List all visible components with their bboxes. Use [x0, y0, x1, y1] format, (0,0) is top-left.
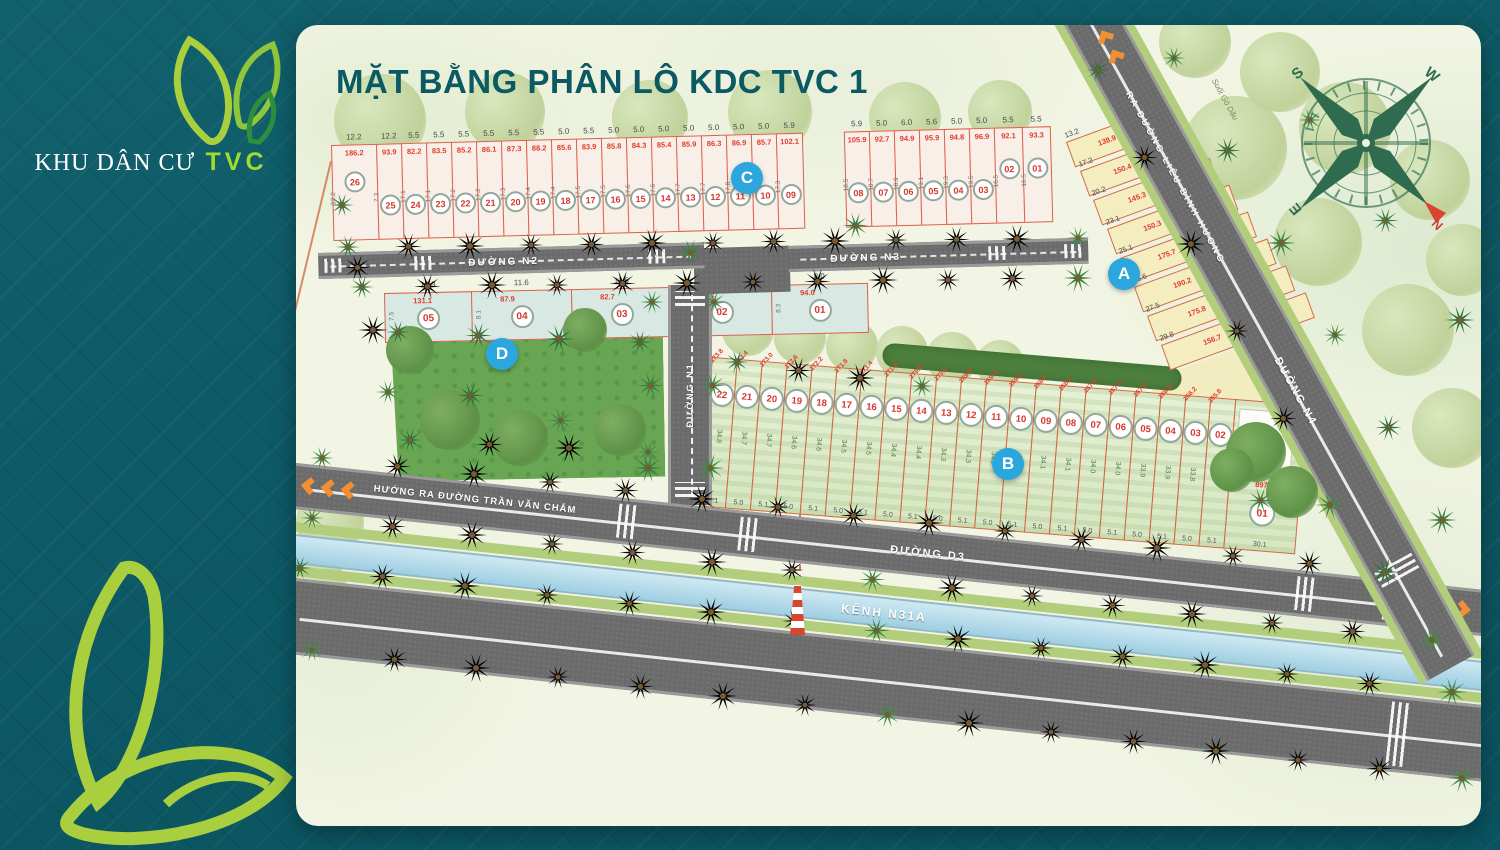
lot-area: 83.5	[427, 146, 451, 156]
lot-number: 01	[808, 299, 831, 322]
lot-number: 05	[1133, 416, 1159, 442]
lot-number: 04	[510, 305, 533, 328]
lot-number: 24	[405, 194, 427, 216]
lot-top-dim: 5.9	[777, 121, 802, 131]
palm-tree-icon	[868, 265, 898, 295]
palm-tree-icon	[609, 270, 636, 297]
lot-side-dim: 8.3	[775, 304, 782, 313]
palm-tree-icon	[538, 470, 562, 494]
lot-bottom-dim: 5.0	[876, 511, 900, 520]
palm-tree-icon	[628, 330, 652, 354]
lot-top-dim: 5.5	[477, 129, 501, 139]
lot-number: 08	[1058, 410, 1084, 436]
palm-tree-icon	[1002, 224, 1032, 254]
lot-number: 21	[734, 384, 760, 410]
lot-bottom-dim: 5.0	[1175, 535, 1199, 544]
palm-tree-icon	[296, 556, 312, 580]
lot-area: 85.2	[452, 145, 476, 155]
lot-top-dim: 5.0	[552, 127, 576, 137]
palm-tree-icon	[1275, 662, 1299, 686]
lot-area: 175.7	[1156, 247, 1177, 262]
palm-tree-icon	[310, 446, 334, 470]
palm-tree-icon	[1039, 720, 1063, 744]
lot-area: 86.9	[727, 138, 751, 148]
lot-side-dim: 34.4	[914, 445, 922, 459]
lot-area: 86.1	[477, 145, 501, 155]
palm-tree-icon	[1296, 550, 1323, 577]
lot-side-dim: 34.5	[839, 439, 847, 453]
lot-bottom-dim: 5.1	[1100, 529, 1124, 538]
palm-tree-icon	[1225, 319, 1249, 343]
chevron-left-icon	[301, 477, 319, 495]
palm-tree-icon	[1323, 323, 1347, 347]
lot-side-dim: 33.9	[1138, 463, 1146, 477]
palm-tree-icon	[884, 228, 908, 252]
leaf-decoration	[6, 552, 306, 850]
lot-number: 08	[848, 182, 870, 204]
lot-c-09: 5.9102.117.309	[776, 133, 806, 230]
block-c-row: 12.2186.212.22612.293.97.3255.582.217.12…	[332, 125, 1084, 241]
lot-bottom-dim: 5.1	[950, 517, 974, 526]
palm-tree-icon	[637, 228, 667, 258]
lot-top-dim: 5.0	[652, 124, 676, 134]
lot-side-dim: 34.7	[764, 433, 772, 447]
lot-bottom-dim: 5.0	[726, 499, 750, 508]
palm-tree-icon	[300, 506, 324, 530]
palm-tree-icon	[640, 290, 664, 314]
palm-tree-icon	[1029, 636, 1053, 660]
lot-top-dim: 5.0	[702, 123, 726, 133]
lot-area: 156.7	[1201, 332, 1222, 347]
lot-number: 22	[455, 192, 477, 214]
lot-area: 150.3	[1141, 218, 1162, 233]
palm-tree-icon	[1120, 728, 1147, 755]
palm-tree-icon	[954, 708, 984, 738]
lot-top-dim: 5.5	[527, 127, 551, 137]
lot-side-dim: 34.6	[814, 437, 822, 451]
palm-tree-icon	[461, 653, 491, 683]
lot-area: 95.9	[920, 133, 944, 143]
lot-area: 186.2	[332, 148, 376, 158]
lot-number: 14	[655, 187, 677, 209]
lot-number: 05	[923, 180, 945, 202]
lot-side-dim: 34.5	[864, 441, 872, 455]
chevron-left-icon	[341, 481, 359, 499]
lot-number: 17	[580, 189, 602, 211]
palm-tree-icon	[1221, 544, 1245, 568]
palm-tree-icon	[1201, 736, 1231, 766]
palm-tree-icon	[1375, 414, 1402, 441]
lot-area: 85.6	[552, 143, 576, 153]
palm-tree-icon	[1177, 599, 1207, 629]
lot-number: 18	[809, 390, 835, 416]
brand-prefix: KHU DÂN CƯ	[34, 150, 195, 176]
palm-tree-icon	[793, 693, 817, 717]
lot-number: 19	[530, 190, 552, 212]
poster-background: KHU DÂN CƯ TVC 12.2186.212.22612.293.97.…	[0, 0, 1500, 850]
lot-number: 13	[933, 400, 959, 426]
lot-bottom-dim: 5.1	[801, 505, 825, 514]
lot-area: 92.7	[870, 134, 894, 144]
lot-area: 190.2	[1171, 275, 1192, 290]
lot-top-dim: 5.9	[845, 119, 869, 129]
palm-tree-icon	[546, 665, 570, 689]
palm-tree-icon	[637, 372, 664, 399]
palm-tree-icon	[999, 265, 1026, 292]
palm-tree-icon	[677, 239, 704, 266]
palm-tree-icon	[578, 231, 605, 258]
palm-tree-icon	[1020, 584, 1044, 608]
palm-tree-icon	[1109, 643, 1136, 670]
palm-tree-icon	[476, 431, 503, 458]
palm-tree-icon	[741, 270, 765, 294]
palm-tree-icon	[859, 566, 886, 593]
palm-tree-icon	[1190, 650, 1220, 680]
lot-side-dim: 16.5	[1021, 174, 1028, 187]
lot-number: 04	[948, 179, 970, 201]
palm-tree-icon	[1247, 487, 1274, 514]
palm-tree-icon	[1427, 505, 1457, 535]
palm-tree-icon	[1447, 763, 1477, 793]
lot-side-dim: 34.3	[964, 449, 972, 463]
palm-tree-icon	[785, 357, 812, 384]
palm-tree-icon	[699, 372, 726, 399]
tree-canopy	[1426, 224, 1481, 296]
lot-area: 85.7	[752, 137, 776, 147]
palm-tree-icon	[544, 324, 574, 354]
palm-tree-icon	[1417, 625, 1447, 655]
badge-block-c: C	[731, 162, 763, 194]
palm-tree-icon	[627, 673, 654, 700]
site-plan-panel: 12.2186.212.22612.293.97.3255.582.217.12…	[296, 25, 1481, 826]
lot-area: 138.9	[1097, 133, 1118, 148]
lot-side-dim: 16.5	[993, 175, 1000, 188]
palm-tree-icon	[1214, 137, 1241, 164]
lot-area: 94.9	[895, 134, 919, 144]
palm-tree-icon	[1162, 46, 1186, 70]
crosswalk	[324, 258, 341, 272]
palm-tree-icon	[1131, 144, 1158, 171]
lot-top-dim: 5.0	[677, 123, 701, 133]
palm-tree-icon	[636, 440, 660, 464]
lot-top-dim: 5.5	[452, 129, 476, 139]
palm-tree-icon	[457, 382, 484, 409]
palm-tree-icon	[395, 233, 422, 260]
lot-number: 25	[380, 194, 402, 216]
lot-number: 09	[1033, 408, 1059, 434]
tree-canopy	[1210, 448, 1254, 492]
palm-tree-icon	[1260, 611, 1284, 635]
lot-number: 17	[834, 392, 860, 418]
lot-number: 06	[1108, 414, 1134, 440]
badge-block-b: B	[992, 448, 1024, 480]
palm-tree-icon	[619, 539, 646, 566]
palm-tree-icon	[1086, 58, 1110, 82]
lot-area: 87.3	[502, 144, 526, 154]
palm-tree-icon	[937, 573, 967, 603]
lot-number: 05	[417, 307, 440, 330]
lot-top-dim: 5.0	[727, 122, 751, 132]
lot-top-dim: 12.2	[332, 132, 376, 142]
lot-top-dim: 5.0	[870, 118, 894, 128]
crosswalk	[1294, 576, 1315, 612]
lot-number: 20	[505, 191, 527, 213]
lot-number: 18	[555, 190, 577, 212]
palm-tree-icon	[414, 273, 441, 300]
palm-tree-icon	[702, 290, 726, 314]
lot-number: 26	[344, 171, 366, 193]
palm-tree-icon	[708, 681, 738, 711]
lot-number: 03	[610, 303, 633, 326]
lot-bottom-dim: 5.0	[1025, 523, 1049, 532]
compass-e: E	[1286, 199, 1305, 218]
lot-top-dim: 5.5	[577, 126, 601, 136]
palm-tree-icon	[845, 363, 875, 393]
lot-top-dim: 12.2	[377, 131, 401, 141]
lot-number: 20	[759, 386, 785, 412]
palm-tree-icon	[697, 547, 727, 577]
lot-side-dim: 34.0	[1113, 461, 1121, 475]
lot-top-dim: 5.5	[402, 131, 426, 141]
lot-number: 19	[784, 388, 810, 414]
palm-tree-icon	[330, 193, 354, 217]
palm-tree-icon	[376, 380, 400, 404]
badge-block-d: D	[486, 338, 518, 370]
lot-area: 85.4	[652, 140, 676, 150]
palm-tree-icon	[1270, 405, 1297, 432]
lot-c-01: 5.593.316.501	[1022, 126, 1054, 223]
lot-area: 83.9	[577, 142, 601, 152]
lot-side-dim: 34.7	[740, 431, 748, 445]
lot-number: 13	[680, 186, 702, 208]
lot-number: 07	[873, 181, 895, 203]
palm-tree-icon	[398, 428, 422, 452]
palm-tree-icon	[725, 350, 749, 374]
road-d3-label: ĐƯỜNG D3	[890, 544, 967, 564]
palm-tree-icon	[910, 374, 934, 398]
lot-area: 85.9	[677, 139, 701, 149]
site-boundary-line	[296, 161, 332, 453]
lot-side-dim: 34.4	[889, 443, 897, 457]
palm-tree-icon	[672, 268, 702, 298]
lot-number: 10	[1008, 406, 1034, 432]
palm-tree-icon	[760, 228, 787, 255]
lot-number: 06	[898, 181, 920, 203]
lot-number: 23	[430, 193, 452, 215]
lot-number: 14	[908, 398, 934, 424]
lot-number: 04	[1158, 418, 1184, 444]
lot-number: 15	[884, 396, 910, 422]
crosswalk	[737, 517, 758, 553]
palm-tree-icon	[547, 407, 574, 434]
palm-tree-icon	[386, 320, 410, 344]
palm-tree-icon	[477, 270, 507, 300]
palm-tree-icon	[1366, 755, 1393, 782]
palm-tree-icon	[1339, 618, 1366, 645]
lot-side-dim: 34.6	[789, 435, 797, 449]
palm-tree-icon	[459, 459, 489, 489]
palm-tree-icon	[1063, 263, 1093, 293]
lot-side-dim: 34.8	[715, 429, 723, 443]
palm-tree-icon	[914, 508, 944, 538]
lot-area: 93.3	[1023, 130, 1050, 140]
palm-tree-icon	[457, 520, 487, 550]
palm-tree-icon	[874, 701, 901, 728]
lot-side-dim: 34.3	[939, 447, 947, 461]
tree-canopy	[1412, 388, 1481, 468]
lot-top-dim: 5.0	[944, 116, 968, 126]
crosswalk	[616, 504, 637, 540]
palm-tree-icon	[519, 233, 543, 257]
palm-tree-icon	[1176, 229, 1206, 259]
lot-number: 03	[973, 179, 995, 201]
lot-side-dim: 34.1	[1064, 457, 1072, 471]
lot-top-dim: 5.6	[919, 117, 943, 127]
palm-tree-icon	[842, 212, 869, 239]
lot-number: 01	[1027, 157, 1049, 179]
lot-number: 07	[1083, 412, 1109, 438]
palm-tree-icon	[1445, 305, 1475, 335]
lot-number: 15	[630, 188, 652, 210]
palm-tree-icon	[358, 315, 388, 345]
palm-tree-icon	[344, 254, 371, 281]
compass-n: N	[1429, 216, 1446, 233]
tree-canopy	[1266, 466, 1318, 518]
badge-block-a: A	[1108, 258, 1140, 290]
lot-area: 175.8	[1186, 304, 1207, 319]
palm-tree-icon	[863, 617, 890, 644]
palm-tree-icon	[1286, 748, 1310, 772]
lot-side-dim: 33.9	[1163, 465, 1171, 479]
lot-number: 21	[480, 192, 502, 214]
lot-side-dim: 34.0	[1088, 459, 1096, 473]
lot-top-dim: 5.0	[752, 121, 776, 131]
palm-tree-icon	[545, 273, 569, 297]
palm-tree-icon	[1315, 490, 1345, 520]
brand-suffix: TVC	[206, 148, 268, 176]
palm-tree-icon	[384, 453, 411, 480]
lot-side-dim: 33.8	[1188, 467, 1196, 481]
compass-rose: S W E N	[1276, 53, 1456, 233]
palm-tree-icon	[616, 590, 643, 617]
lot-side-dim: 34.1	[1039, 455, 1047, 469]
page-title: MẶT BẰNG PHÂN LÔ KDC TVC 1	[336, 63, 868, 101]
brand-name: KHU DÂN CƯ TVC	[10, 148, 292, 177]
lot-area: 93.9	[377, 147, 401, 157]
palm-tree-icon	[695, 453, 725, 483]
lot-top-dim: 5.0	[627, 125, 651, 135]
lot-side-dim: 7.3	[373, 193, 380, 202]
palm-tree-icon	[369, 563, 396, 590]
lot-side-dim: 8.1	[475, 310, 482, 319]
lot-top-dim: 5.5	[994, 115, 1021, 125]
lot-number: 16	[859, 394, 885, 420]
lot-top-dim: 5.5	[502, 128, 526, 138]
palm-tree-icon	[455, 231, 485, 261]
lot-top-dim: 5.0	[602, 125, 626, 135]
brand-leaf-logo	[150, 30, 290, 145]
lot-area: 82.2	[402, 147, 426, 157]
palm-tree-icon	[1068, 526, 1095, 553]
palm-tree-icon	[1099, 592, 1126, 619]
lot-area: 86.3	[702, 139, 726, 149]
lot-top-dim: 5.5	[427, 130, 451, 140]
lot-area: 102.1	[777, 137, 802, 147]
palm-tree-icon	[804, 268, 831, 295]
lot-number: 02	[999, 158, 1021, 180]
lot-area: 88.2	[527, 143, 551, 153]
palm-tree-icon	[381, 646, 408, 673]
palm-tree-icon	[840, 502, 867, 529]
road-n1-label: ĐƯỜNG N1	[685, 362, 695, 427]
palm-tree-icon	[943, 226, 970, 253]
lot-area: 84.3	[627, 141, 651, 151]
palm-tree-icon	[943, 624, 973, 654]
palm-tree-icon	[696, 597, 726, 627]
palm-tree-icon	[1370, 557, 1400, 587]
lot-top-dim: 5.0	[969, 116, 993, 126]
palm-tree-icon	[379, 513, 406, 540]
lot-number: 12	[705, 186, 727, 208]
palm-tree-icon	[1437, 677, 1467, 707]
lot-top-dim: 6.0	[894, 118, 918, 128]
palm-tree-icon	[450, 571, 480, 601]
lot-area: 92.1	[995, 131, 1022, 141]
palm-tree-icon	[540, 532, 564, 556]
palm-tree-icon	[1066, 226, 1090, 250]
lot-number: 09	[780, 184, 802, 206]
palm-tree-icon	[936, 268, 960, 292]
lot-area: 145.3	[1126, 190, 1147, 205]
lot-area: 150.4	[1112, 161, 1133, 176]
lot-area: 85.8	[602, 141, 626, 151]
palm-tree-icon	[701, 231, 725, 255]
chevron-left-icon	[321, 479, 339, 497]
lot-area: 94.8	[945, 132, 969, 142]
palm-tree-icon	[554, 433, 584, 463]
palm-tree-icon	[535, 583, 559, 607]
palm-tree-icon	[687, 484, 717, 514]
lot-number: 16	[605, 188, 627, 210]
lot-number: 11	[983, 404, 1009, 430]
palm-tree-icon	[1142, 533, 1172, 563]
palm-tree-icon	[780, 558, 804, 582]
palm-tree-icon	[1356, 670, 1383, 697]
palm-tree-icon	[993, 519, 1017, 543]
lot-top-dim: 5.5	[1022, 114, 1049, 124]
palm-tree-icon	[300, 638, 324, 662]
lot-number: 03	[1183, 420, 1209, 446]
lot-area: 96.9	[970, 132, 994, 142]
tree-canopy	[1362, 284, 1454, 376]
lot-area: 105.9	[845, 135, 869, 145]
lot-number: 12	[958, 402, 984, 428]
palm-tree-icon	[766, 495, 790, 519]
